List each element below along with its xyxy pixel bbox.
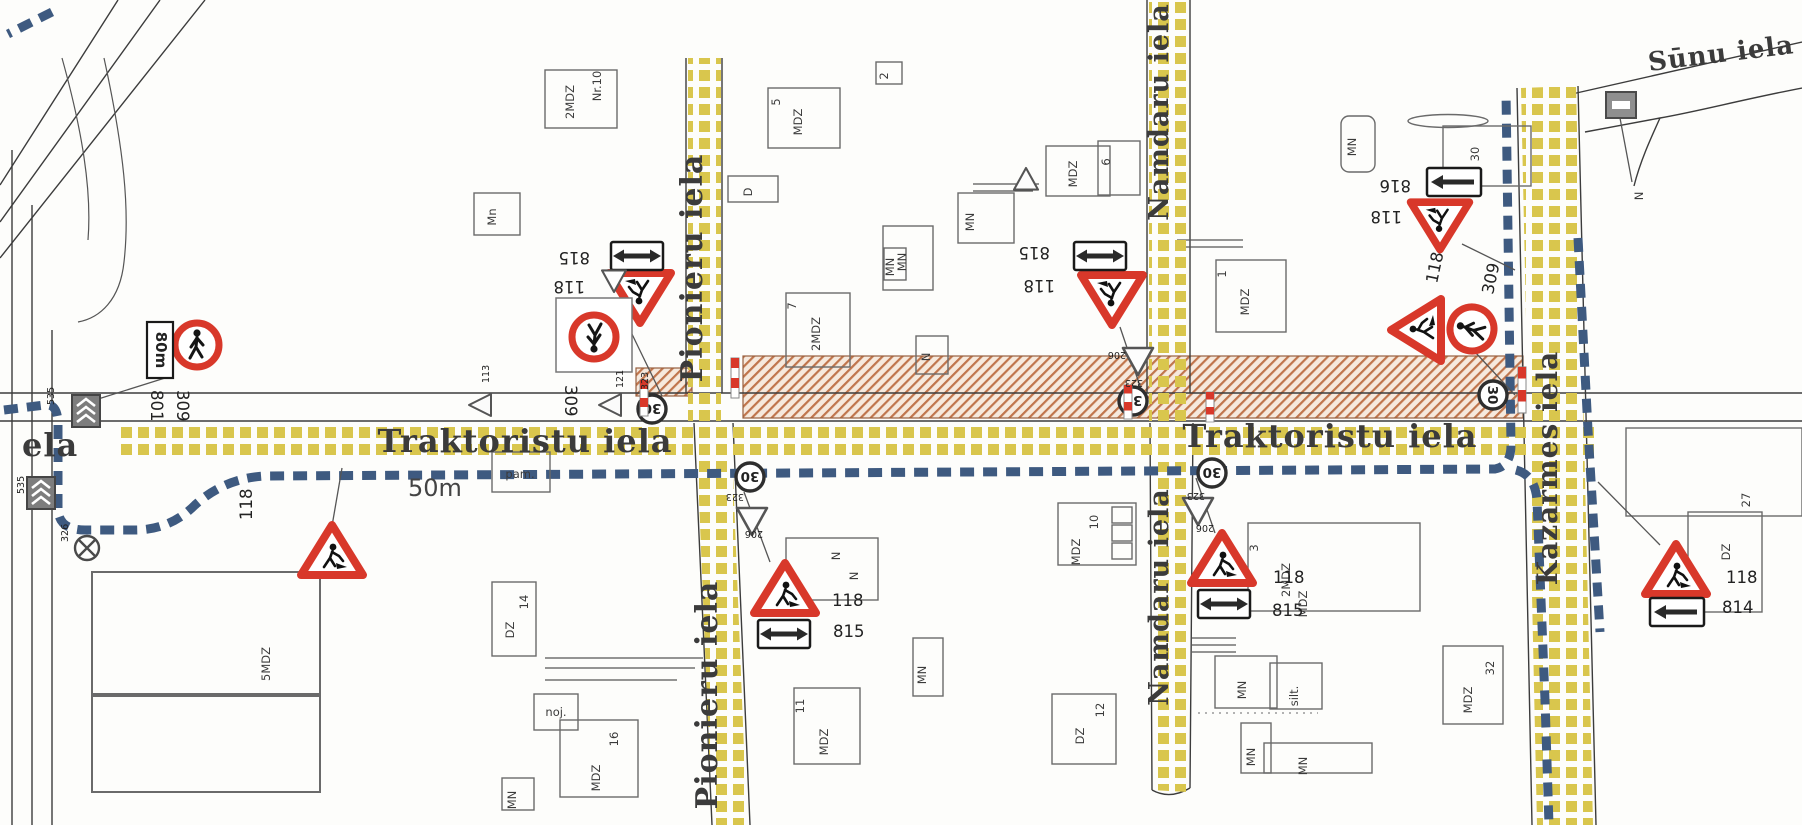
speed-limit-30-sign: [736, 463, 764, 491]
barrier-post: [1206, 392, 1214, 422]
street-label-pionieru-south: Pionieru iela: [690, 581, 725, 810]
give-way-sign: [1014, 168, 1038, 190]
sign-code-815: 815: [1019, 243, 1051, 262]
traffic-scheme-map: 30: [0, 0, 1802, 825]
building-label: N: [829, 552, 843, 561]
distance-80m-label: 80m: [152, 332, 170, 369]
sign-code-118: 118: [1024, 276, 1056, 295]
sign-code-118: 118: [832, 591, 864, 610]
building-label: pam.: [505, 467, 534, 481]
building-label: MDZ: [817, 729, 831, 756]
sign-code-323: 323: [640, 372, 651, 390]
detour-distance-label: 50m: [408, 474, 462, 502]
building-label: noj.: [545, 705, 566, 719]
speed-limit-30-sign: [1119, 387, 1147, 415]
sign-code-118: 118: [237, 489, 256, 521]
work-zone-hatch: [636, 356, 1523, 418]
street-label-pionieru-north: Pionieru iela: [675, 154, 710, 383]
sign-code-118: 118: [1273, 568, 1305, 587]
building-label: 7: [785, 302, 799, 309]
extent-plate-815: [611, 242, 663, 270]
street-label-namdaru-north: Namdaru iela: [1144, 3, 1175, 221]
distance-plate-80m: 80m: [147, 322, 173, 378]
building-label: D: [741, 187, 755, 196]
building-label: 2MDZ: [563, 85, 577, 119]
building-label: MN: [915, 666, 929, 685]
sign-code-113: 113: [481, 365, 492, 383]
lane-direction-sign: [72, 395, 100, 427]
extent-plate-814: [1650, 598, 1704, 626]
sign-code-206: 206: [1196, 522, 1214, 533]
building-label: MN: [1296, 757, 1310, 776]
building-label: MN: [1244, 748, 1258, 767]
building-label: N: [919, 353, 933, 362]
barrier-post: [1518, 367, 1526, 413]
carriageway-arrow: [469, 394, 491, 416]
building-label: DZ: [503, 622, 517, 639]
building-label: DZ: [1719, 544, 1733, 561]
extent-plate-815: [758, 620, 810, 648]
sign-code-323: 323: [726, 491, 744, 502]
sign-code-309: 309: [1478, 261, 1503, 296]
building-label: 6: [1099, 158, 1113, 165]
no-pedestrians-sign: [572, 315, 616, 359]
building-label: 12: [1093, 703, 1107, 718]
building-label: 2: [877, 72, 891, 79]
speed-limit-30-sign: [1479, 381, 1507, 409]
sign-code-118: 118: [1726, 568, 1758, 587]
building-label: MDZ: [589, 765, 603, 792]
building-label: 10: [1087, 515, 1101, 530]
building-label: 32: [1483, 661, 1497, 676]
extent-plate-815: [1074, 242, 1126, 270]
building-label: MDZ: [1066, 161, 1080, 188]
sign-code-535: 535: [16, 476, 27, 494]
building-label: 5: [769, 98, 783, 105]
building-label: 2MDZ: [809, 317, 823, 351]
sign-code-118: 118: [554, 277, 586, 296]
sign-code-535: 535: [46, 387, 57, 405]
road-works-sign: [301, 525, 363, 575]
road-works-sign: [1411, 202, 1470, 250]
sign-code-206: 206: [1108, 349, 1126, 360]
street-label-left-partial: ela: [22, 426, 78, 464]
sign-code-326: 326: [60, 524, 71, 542]
barrier-post: [1124, 385, 1132, 419]
building-label: MDZ: [1461, 687, 1475, 714]
sign-code-814: 814: [1722, 598, 1754, 617]
building-label: Mn: [485, 208, 499, 225]
building-label: MDZ: [791, 109, 805, 136]
sign-code-815: 815: [1272, 601, 1304, 620]
building-label: MDZ: [1069, 539, 1083, 566]
building-label: 16: [607, 732, 621, 747]
sign-code-118: 118: [1422, 250, 1447, 285]
building-label: MN: [1345, 138, 1359, 157]
building-label: 27: [1739, 493, 1753, 508]
sign-code-309: 309: [173, 390, 192, 422]
street-label-sunu: Sūnu iela: [1646, 30, 1795, 78]
road-works-sign: [1645, 544, 1707, 594]
building-label: 14: [517, 595, 531, 610]
building-label: 5MDZ: [259, 647, 273, 681]
road-works-sign: [1081, 275, 1143, 325]
sign-code-206: 206: [745, 528, 763, 539]
street-label-kazarmes: Kazarmes iela: [1531, 351, 1564, 585]
sign-code-815: 815: [833, 622, 865, 641]
road-works-sign: [1191, 533, 1253, 583]
building-label: N: [847, 572, 861, 581]
no-pedestrians-sign: [175, 323, 219, 367]
extent-plate-816: [1427, 168, 1481, 196]
barrier-post: [731, 358, 739, 398]
extent-plate-815: [1198, 590, 1250, 618]
sign-code-309: 309: [561, 385, 580, 417]
building-label: N: [1632, 192, 1646, 201]
sign-code-801: 801: [147, 390, 166, 422]
carriageway-arrow: [599, 394, 621, 416]
building-label: MN: [505, 791, 519, 810]
street-label-traktoristu-west: Traktoristu iela: [378, 422, 673, 460]
building-label: 1: [1215, 270, 1229, 277]
building-label: silt.: [1287, 686, 1301, 707]
street-label-traktoristu-east: Traktoristu iela: [1183, 417, 1478, 455]
sign-code-323: 323: [1125, 377, 1143, 388]
building-label: MN: [963, 213, 977, 232]
sign-code-815: 815: [559, 248, 591, 267]
building-label: 30: [1468, 147, 1482, 162]
building-label: MN: [1235, 681, 1249, 700]
road-works-sign: [1391, 299, 1441, 361]
sign-code-816: 816: [1380, 176, 1412, 195]
building-label: DZ: [1073, 728, 1087, 745]
building-label: 11: [793, 699, 807, 714]
sign-code-323: 323: [1187, 490, 1205, 501]
building-label: Nr.10: [590, 71, 604, 102]
lane-direction-sign: [27, 477, 55, 509]
building-label: MDZ: [1238, 289, 1252, 316]
no-pedestrians-sign: [1445, 302, 1499, 356]
building-label: 3: [1247, 544, 1261, 551]
no-entry-sign: [1606, 92, 1636, 118]
sign-code-118: 118: [1371, 207, 1403, 226]
speed-limit-30-sign: [1198, 459, 1226, 487]
street-label-namdaru-south: Namdaru iela: [1144, 488, 1175, 706]
map-canvas: 30: [0, 0, 1802, 825]
sign-code-121: 121: [615, 370, 626, 388]
building-label: MN: [895, 253, 909, 272]
road-works-sign: [754, 563, 816, 613]
road-closed-mark: [75, 536, 99, 560]
